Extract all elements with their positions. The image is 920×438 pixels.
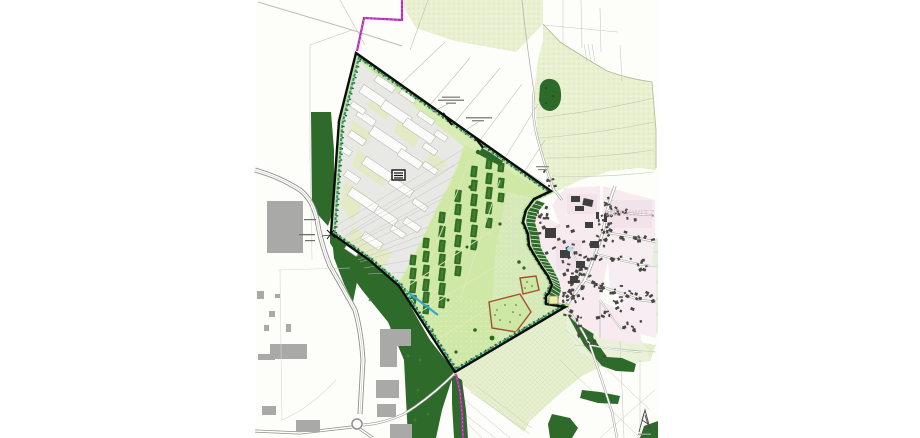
svg-text:MERKWITZ: MERKWITZ bbox=[606, 209, 655, 218]
